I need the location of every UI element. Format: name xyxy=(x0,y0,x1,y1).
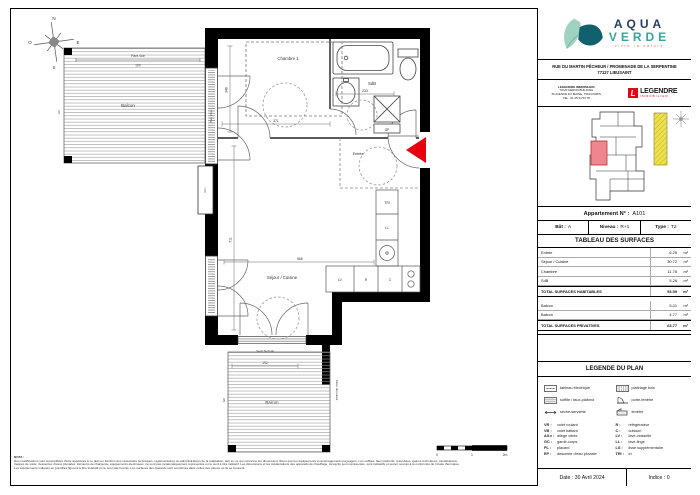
bathroom-fixtures xyxy=(333,42,418,133)
legend-item: tableau électrique xyxy=(544,385,616,392)
row-unit: m² xyxy=(677,278,691,283)
row-value: 4.77 xyxy=(650,311,677,320)
type-label: Type : xyxy=(655,225,669,230)
legend-item: soffite / faux-plafond xyxy=(544,397,616,404)
legend-label: soffite / faux-plafond xyxy=(560,398,594,402)
bat-cell: Bât : A xyxy=(538,221,589,234)
fenetre-icon xyxy=(616,408,629,416)
apartment-label: Appartement N° : xyxy=(584,211,630,217)
table-row: Balcon 4.77 m² xyxy=(538,311,691,321)
dim-348: 348 xyxy=(225,87,229,93)
dim-190: 190 xyxy=(135,64,141,68)
aqua-verde-leaf-icon xyxy=(559,13,605,55)
pare-vue-label: Pare-vue xyxy=(131,54,145,58)
date-cell: Date : 30 Avril 2024 xyxy=(538,469,627,486)
legend-item: porte-fenêtre xyxy=(616,396,688,404)
row-unit: m² xyxy=(677,259,691,264)
bat-niveau-type-row: Bât : A Niveau : R+1 Type : T2 xyxy=(538,221,691,235)
soffite-outline xyxy=(246,42,342,116)
nota-disclaimer: NOTA : Des modifications sont susceptibl… xyxy=(14,456,526,471)
niveau-cell: Niveau : R+1 xyxy=(589,221,640,234)
legend-item: fenêtre xyxy=(616,408,688,416)
table-row: Séjour / Cuisine 30.72 m² xyxy=(538,258,691,268)
gc-top-label: GC xyxy=(57,109,61,114)
niveau-value: R+1 xyxy=(620,225,629,230)
logo-tagline: vivre la nature xyxy=(615,45,665,49)
compass-o: O xyxy=(28,40,32,45)
logo-word-verde: VERDE xyxy=(609,31,670,43)
aqua-verde-logo: AQUA VERDE vivre la nature xyxy=(538,8,691,60)
entrance-arrow-icon xyxy=(406,137,426,163)
footer-row: Date : 30 Avril 2024 Indice : 0 xyxy=(538,468,691,486)
c-label: C xyxy=(389,278,392,282)
row-unit: m² xyxy=(677,250,691,255)
legendre-mark-icon: L xyxy=(628,88,638,98)
dim-566: 566 xyxy=(297,257,303,261)
porte-fenetre-icon xyxy=(616,396,629,404)
dim-711: 711 xyxy=(229,237,233,243)
legend-abbreviations: VR :volet roulant VB :volet battant All.… xyxy=(544,423,687,457)
legendre-brand-sub: IMMOBILIER xyxy=(640,95,677,98)
address-line2: 77127 LIEUSAINT xyxy=(597,70,631,76)
gc-bottom-label: GC xyxy=(222,397,226,402)
row-value: 11.76 xyxy=(650,267,677,276)
row-unit: m² xyxy=(677,312,691,317)
legend-label: fenêtre xyxy=(632,410,644,414)
row-value: 5.26 xyxy=(650,277,677,286)
allege-label: All.v xyxy=(203,187,207,193)
chambre-label: Chambre 1 xyxy=(277,56,299,61)
lv-label: LV xyxy=(338,278,343,282)
key-plan xyxy=(538,107,691,207)
apartment-value: A101 xyxy=(632,211,645,217)
bat-value: A xyxy=(568,225,571,230)
tri-label: TRI xyxy=(384,201,390,205)
type-value: T2 xyxy=(671,225,677,230)
dim-233: 233 xyxy=(362,89,368,93)
dimension-texts: 371 348 233 711 566 192 xyxy=(225,87,368,365)
legend-item: platelage bois xyxy=(616,385,688,392)
legendre-logo: L LEGENDRE IMMOBILIER xyxy=(615,88,692,99)
promoter-block: LEGENDRE IMMOBILIER TOUR HERON BUILDING … xyxy=(538,80,691,107)
compass-n: N xyxy=(52,16,55,21)
seche-serviette-icon xyxy=(544,409,557,416)
indice-cell: Indice : 0 xyxy=(627,469,691,486)
legend-title: LEGENDE DU PLAN xyxy=(538,361,691,377)
row-value: 5.01 xyxy=(650,301,677,310)
row-value: 53.99 xyxy=(650,287,677,296)
row-unit: m² xyxy=(677,303,691,308)
compass-s: S xyxy=(52,65,55,70)
legend-label: tableau électrique xyxy=(560,386,590,390)
row-label: SdB xyxy=(538,278,650,283)
entree-boundary xyxy=(340,138,420,188)
plan-sheet: N S E O Pare-vue 190 Balcon GC xyxy=(0,0,700,495)
total-habitables-row: TOTAL SURFACES HABITABLES 53.99 m² xyxy=(538,286,691,297)
sdb-label: SdB xyxy=(368,81,376,86)
row-label: Chambre xyxy=(538,269,650,274)
table-row: Balcon 5.01 m² xyxy=(538,301,691,311)
row-unit: m² xyxy=(677,269,691,274)
row-label: Entrée xyxy=(538,250,650,255)
total-privatives-row: TOTAL SURFACES PRIVATIVES 63.77 m² xyxy=(538,320,691,331)
row-value: 6.25 xyxy=(650,248,677,257)
ll-label: LL xyxy=(385,226,389,230)
row-unit: m² xyxy=(677,323,691,328)
promoter-tel: TEL : 01 45 54 53 78 xyxy=(563,97,590,101)
balcony-top-label: Balcon xyxy=(121,103,135,108)
row-value: 63.77 xyxy=(650,321,677,330)
type-cell: Type : T2 xyxy=(641,221,691,234)
row-label: Séjour / Cuisine xyxy=(538,259,650,264)
apartment-number-row: Appartement N° : A101 xyxy=(538,207,691,221)
r-label: R xyxy=(365,278,368,282)
bat-label: Bât : xyxy=(555,225,566,230)
keyplan-compass-icon xyxy=(673,111,689,127)
table-row: Entrée 6.25 m² xyxy=(538,248,691,258)
row-label: Balcon xyxy=(538,303,650,308)
row-label: TOTAL SURFACES PRIVATIVES xyxy=(538,323,650,328)
row-label: TOTAL SURFACES HABITABLES xyxy=(538,289,650,294)
key-plan-drawing xyxy=(538,107,690,205)
gaine-label: GP xyxy=(385,128,390,132)
legend-item: sèche-serviette xyxy=(544,409,616,416)
balcony-top: Pare-vue 190 Balcon GC xyxy=(57,48,205,163)
kitchen-units xyxy=(326,190,420,292)
abbr-item: EP :descente d'eau pluviale xyxy=(544,452,616,458)
platelage-bois-icon xyxy=(616,385,629,392)
dim-371: 371 xyxy=(273,119,279,123)
row-unit: m² xyxy=(677,289,691,294)
nota-line3: Les équipements indiqués en pointillés f… xyxy=(14,466,245,470)
legend-label: porte-fenêtre xyxy=(632,398,654,402)
title-block: AQUA VERDE vivre la nature RUE DU MARTIN… xyxy=(537,8,691,486)
balcony-bottom xyxy=(228,352,330,452)
table-row: Chambre 11.76 m² xyxy=(538,267,691,277)
walls xyxy=(205,28,430,385)
legend-label: platelage bois xyxy=(632,386,655,390)
compass-e: E xyxy=(76,40,79,45)
store-label: Store déroulant xyxy=(335,380,339,401)
keyplan-highlight-unit xyxy=(591,141,607,165)
row-value: 30.72 xyxy=(650,258,677,267)
niveau-label: Niveau : xyxy=(600,225,619,230)
kitchen-labels: TRI LL LV R C xyxy=(338,201,392,282)
plan-legend: LEGENDE DU PLAN tableau électrique soffi… xyxy=(538,335,691,468)
toilet xyxy=(398,49,418,57)
baie-vitree-label: Baie vitrée xyxy=(209,109,213,123)
surfaces-title: TABLEAU DES SURFACES xyxy=(538,235,691,248)
entree-label: Entrée xyxy=(353,152,364,156)
legend-label: sèche-serviette xyxy=(560,410,586,414)
row-label: Balcon xyxy=(538,312,650,317)
logo-word-aqua: AQUA xyxy=(614,18,665,30)
sejour-label: Séjour / Cuisine xyxy=(267,275,298,280)
project-address: RUE DU MARTIN PÊCHEUR / PROMENADE DE LA … xyxy=(538,60,691,80)
abbr-item: TRI :tri xyxy=(616,452,688,458)
surfaces-table: TABLEAU DES SURFACES Entrée 6.25 m² Séjo… xyxy=(538,235,691,335)
soffite-faux-plafond-icon xyxy=(544,397,557,404)
table-row: SdB 5.26 m² xyxy=(538,277,691,287)
tableau-electrique-icon xyxy=(544,385,557,392)
